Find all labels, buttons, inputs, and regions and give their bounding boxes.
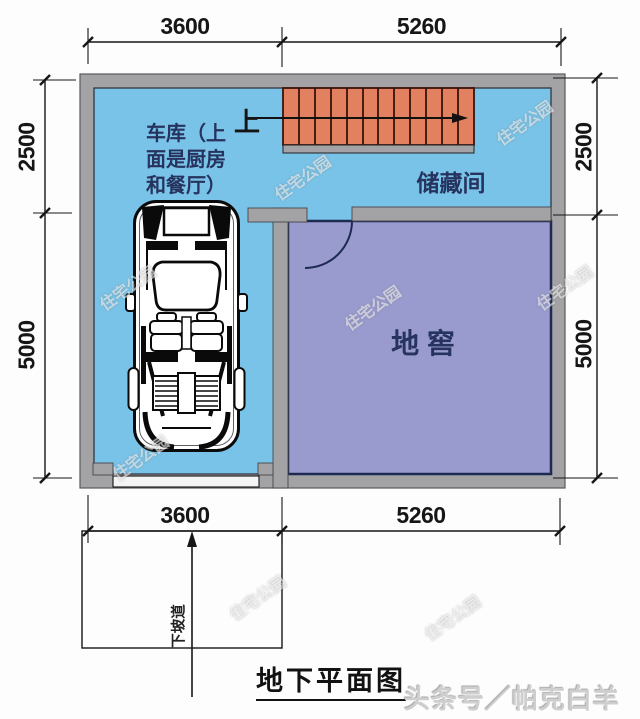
garage-door-jamb-right — [258, 463, 273, 475]
stair-edge-strip — [283, 145, 474, 153]
garage-label-line3: 和餐厅） — [108, 173, 264, 199]
dim-left-upper: 2500 — [14, 122, 41, 171]
cellar-top-wall — [352, 207, 551, 221]
garage-cellar-wall — [273, 208, 288, 488]
storage-room-label: 储藏间 — [395, 164, 507, 198]
dim-top-left: 3600 — [88, 13, 282, 40]
ramp-arrow-icon — [187, 531, 197, 547]
dim-bottom-left: 3600 — [88, 502, 282, 529]
dim-right-upper: 2500 — [571, 122, 598, 171]
floor-plan-drawing — [0, 0, 640, 719]
cellar-door-jamb — [248, 208, 307, 222]
byline-watermark: 头条号／帕克白羊 — [404, 679, 620, 716]
plan-title: 地下平面图 — [256, 659, 406, 701]
car-top-view — [126, 202, 247, 451]
stairs-up-label: 上 — [234, 102, 260, 139]
ramp-label: 下坡道 — [168, 604, 189, 648]
dim-bottom-right: 5260 — [282, 502, 560, 529]
cellar-label: 地 窖 — [368, 322, 478, 362]
dim-right-lower: 5000 — [571, 319, 598, 368]
garage-door-jamb-left — [93, 463, 113, 475]
garage-door — [113, 476, 259, 487]
car-mirror-right — [238, 294, 247, 311]
garage-label-line2: 面是厨房 — [108, 147, 264, 173]
stairs — [252, 88, 474, 153]
floor-plan: 3600 5260 3600 5260 2500 5000 2500 5000 … — [0, 0, 640, 719]
dim-left-lower: 5000 — [14, 320, 41, 369]
car-mirror-left — [126, 294, 135, 311]
dim-top-right: 5260 — [282, 13, 561, 40]
